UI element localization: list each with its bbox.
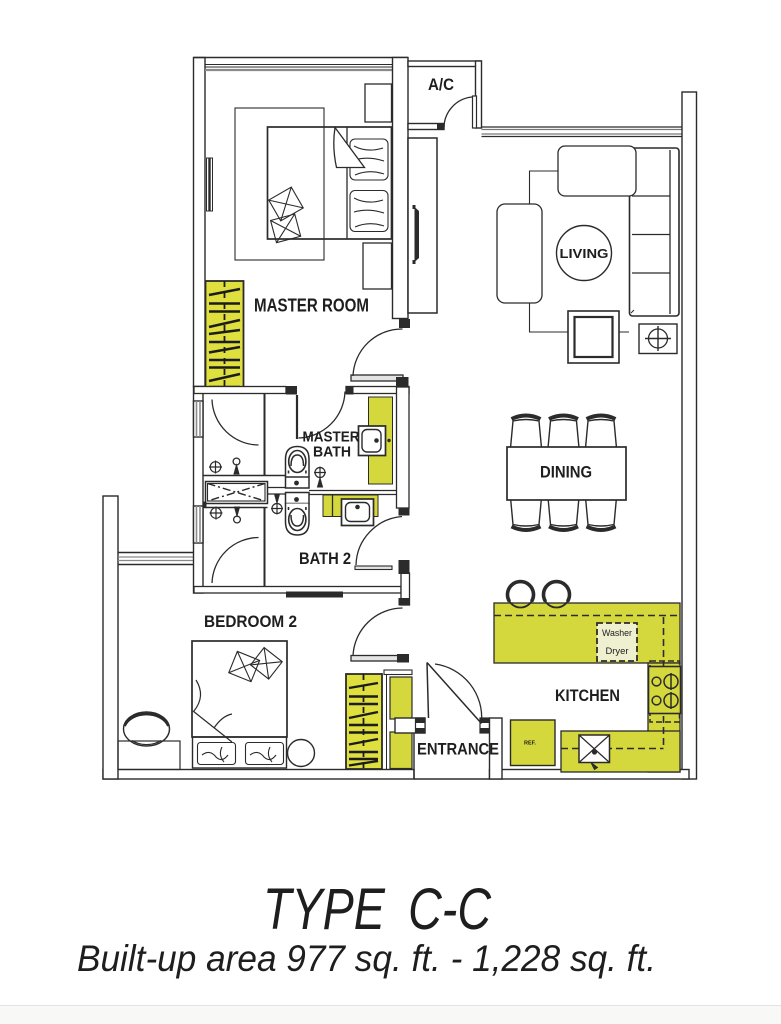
svg-text:A/C: A/C — [428, 75, 454, 94]
svg-text:BATH 2: BATH 2 — [299, 549, 351, 568]
svg-text:Washer: Washer — [602, 628, 632, 638]
svg-text:KITCHEN: KITCHEN — [555, 687, 620, 705]
svg-text:ENTRANCE: ENTRANCE — [417, 741, 499, 759]
svg-text:LIVING: LIVING — [560, 246, 609, 261]
svg-text:REF.: REF. — [524, 741, 536, 747]
svg-text:MASTER: MASTER — [303, 430, 360, 446]
svg-text:BEDROOM 2: BEDROOM 2 — [204, 612, 297, 631]
svg-text:TYPE C-C: TYPE C-C — [263, 877, 492, 942]
svg-text:Built-up area 977 sq. ft. - 1,: Built-up area 977 sq. ft. - 1,228 sq. ft… — [77, 938, 656, 979]
svg-text:BATH: BATH — [313, 445, 351, 461]
svg-text:DINING: DINING — [540, 463, 592, 482]
svg-text:MASTER ROOM: MASTER ROOM — [254, 296, 369, 316]
svg-text:Dryer: Dryer — [606, 646, 629, 656]
